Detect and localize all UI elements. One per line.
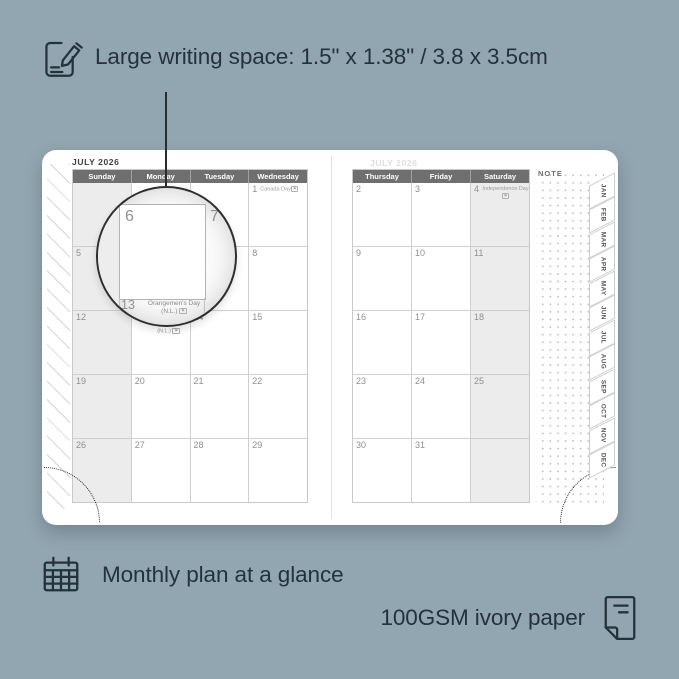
calendar-row: 3031 — [353, 439, 529, 502]
right-page-calendar: ThursdayFridaySaturday234Independence Da… — [352, 169, 530, 503]
calendar-cell: 3 — [412, 183, 471, 246]
day-number: 22 — [252, 377, 262, 386]
lens-holiday-label: Orangemen's Day (N.L.) ⚑ — [138, 300, 210, 316]
corner-arc-bottom-right — [556, 463, 616, 523]
day-number: 16 — [356, 313, 366, 322]
day-number: 28 — [194, 441, 204, 450]
calendar-grid-icon — [40, 554, 82, 596]
day-number: 29 — [252, 441, 262, 450]
calendar-cell: 9 — [353, 247, 412, 310]
day-number: 15 — [252, 313, 262, 322]
flag-icon: ⚑ — [179, 308, 187, 314]
paper-label: 100GSM ivory paper — [380, 605, 585, 631]
calendar-row: 19202122 — [73, 375, 307, 439]
flag-icon: ⚑ — [502, 193, 510, 199]
holiday-label: Independence Day⚑ — [482, 186, 529, 201]
feature-writing-space: Large writing space: 1.5" x 1.38" / 3.8 … — [38, 33, 548, 81]
day-header: Saturday — [471, 170, 529, 183]
calendar-cell: 28 — [191, 439, 250, 502]
note-label: NOTE — [538, 169, 563, 178]
magnifier-lens: 6 7 13 Orangemen's Day (N.L.) ⚑ — [96, 186, 237, 327]
day-number: 17 — [415, 313, 425, 322]
calendar-cell: 15 — [249, 311, 307, 374]
feature-monthly-plan: Monthly plan at a glance — [40, 554, 344, 596]
lens-grid-line — [119, 298, 120, 325]
day-number: 2 — [356, 185, 361, 194]
calendar-cell: 14 — [191, 311, 250, 374]
calendar-row: 234Independence Day⚑ — [353, 183, 529, 247]
day-number: 11 — [474, 249, 483, 258]
lens-sunday-shade — [98, 188, 120, 325]
lens-day-6: 6 — [125, 208, 134, 226]
day-number: 8 — [252, 249, 257, 258]
writing-space-label: Large writing space: 1.5" x 1.38" / 3.8 … — [95, 44, 548, 70]
feature-paper: 100GSM ivory paper — [380, 593, 639, 643]
day-number: 25 — [474, 377, 484, 386]
calendar-cell: 18 — [471, 311, 529, 374]
corner-arc-bottom-left — [44, 463, 104, 523]
day-number: 21 — [194, 377, 204, 386]
center-fold-line — [331, 156, 332, 519]
holiday-label: Canada Day⚑ — [260, 186, 298, 194]
calendar-cell: 10 — [412, 247, 471, 310]
calendar-cell: 29 — [249, 439, 307, 502]
calendar-cell: 16 — [353, 311, 412, 374]
day-number: 9 — [356, 249, 361, 258]
calendar-cell: 25 — [471, 375, 529, 438]
day-header: Friday — [412, 170, 471, 183]
monthly-plan-label: Monthly plan at a glance — [102, 562, 344, 588]
product-image: Large writing space: 1.5" x 1.38" / 3.8 … — [0, 0, 679, 679]
calendar-body: 234Independence Day⚑91011161718232425303… — [353, 183, 529, 502]
day-header: Tuesday — [191, 170, 250, 183]
calendar-cell — [471, 439, 529, 502]
page-edge-hatching — [47, 164, 70, 509]
day-number: 20 — [135, 377, 145, 386]
calendar-cell: 8 — [249, 247, 307, 310]
day-number: 26 — [76, 441, 86, 450]
calendar-cell: 17 — [412, 311, 471, 374]
lens-day-7: 7 — [210, 208, 219, 226]
calendar-cell: 24 — [412, 375, 471, 438]
flag-icon: ⚑ — [291, 186, 299, 192]
day-header: Thursday — [353, 170, 412, 183]
day-number: 3 — [415, 185, 420, 194]
calendar-cell: 31 — [412, 439, 471, 502]
day-header: Sunday — [73, 170, 132, 183]
calendar-cell: 22 — [249, 375, 307, 438]
calendar-row: 91011 — [353, 247, 529, 311]
calendar-header-row: ThursdayFridaySaturday — [353, 170, 529, 183]
day-number: 27 — [135, 441, 145, 450]
day-number: 19 — [76, 377, 86, 386]
calendar-cell: 30 — [353, 439, 412, 502]
day-header: Wednesday — [249, 170, 307, 183]
day-number: 18 — [474, 313, 484, 322]
month-title-ghost: JULY 2026 — [370, 158, 417, 168]
day-number: 1 — [252, 185, 257, 194]
calendar-cell: 27 — [132, 439, 191, 502]
calendar-cell: 21 — [191, 375, 250, 438]
lens-day-13: 13 — [121, 298, 135, 312]
calendar-cell: 19 — [73, 375, 132, 438]
calendar-cell: 20 — [132, 375, 191, 438]
calendar-cell: 2 — [353, 183, 412, 246]
calendar-row: 161718 — [353, 311, 529, 375]
calendar-cell: 23 — [353, 375, 412, 438]
day-number: 12 — [76, 313, 86, 322]
month-title: JULY 2026 — [72, 157, 119, 167]
month-tabs: JANFEBMARAPRMAYJUNJULAUGSEPOCTNOVDEC — [589, 178, 615, 472]
calendar-row: 26272829 — [73, 439, 307, 502]
day-number: 23 — [356, 377, 366, 386]
paper-sheet-icon — [601, 593, 639, 643]
day-number: 10 — [415, 249, 425, 258]
calendar-cell: 4Independence Day⚑ — [471, 183, 529, 246]
calendar-cell: 11 — [471, 247, 529, 310]
day-number: 5 — [76, 249, 81, 258]
day-number: 30 — [356, 441, 366, 450]
pencil-note-icon — [38, 33, 83, 81]
day-number: 4 — [474, 185, 479, 194]
calendar-header-row: SundayMondayTuesdayWednesday — [73, 170, 307, 183]
day-header: Monday — [132, 170, 191, 183]
flag-icon: ⚑ — [172, 328, 180, 334]
callout-line — [165, 92, 167, 191]
calendar-row: 232425 — [353, 375, 529, 439]
day-number: 24 — [415, 377, 425, 386]
calendar-cell: 1Canada Day⚑ — [249, 183, 307, 246]
day-number: 31 — [415, 441, 425, 450]
